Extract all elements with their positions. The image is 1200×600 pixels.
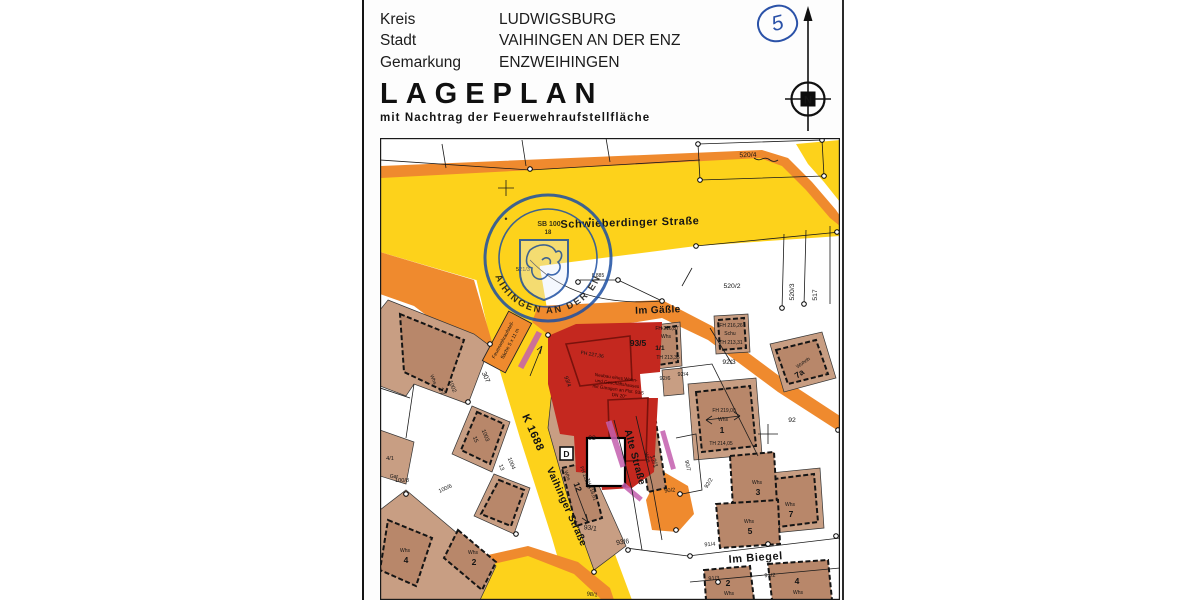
survey-point (822, 174, 827, 179)
house-number: 3 (756, 487, 761, 497)
building-use-label: Whs (661, 334, 672, 340)
survey-point (466, 400, 471, 405)
parcel-label: 1/1 (655, 345, 665, 352)
survey-point (546, 333, 551, 338)
north-arrow-head (804, 6, 813, 21)
building-use-label: Whs (468, 550, 479, 556)
house-number: 7 (789, 509, 794, 519)
street-label-im-biegel: Im Biegel (728, 550, 783, 566)
meta-label: Kreis (380, 9, 499, 30)
survey-point (694, 244, 699, 249)
meta-value: ENZWEIHINGEN (499, 52, 620, 73)
house-number: 4 (795, 576, 800, 586)
survey-point (592, 570, 597, 575)
north-letter: N (804, 95, 812, 107)
street-label-im-gaessle: Im Gäßle (635, 304, 681, 317)
parcel-label: 91/4 (704, 542, 715, 549)
survey-point (698, 178, 703, 183)
parcel-label: 13 (497, 464, 505, 472)
parcel-label: 520/4 (739, 152, 756, 160)
parcel-label: 92/4 (678, 372, 689, 378)
parcel-label: 4/1 (386, 456, 394, 462)
stamp-shield (520, 240, 568, 300)
building-use-label: Whs (400, 548, 411, 554)
parcel-label: 92/6 (660, 376, 671, 382)
page-subtitle: mit Nachtrag der Feuerwehraufstellfläche (380, 112, 830, 124)
scanned-lageplan: Kreis LUDWIGSBURG Stadt VAIHINGEN AN DER… (0, 0, 1200, 600)
document-page: Kreis LUDWIGSBURG Stadt VAIHINGEN AN DER… (362, 0, 844, 600)
parcel-label: 1004 (506, 457, 516, 471)
survey-point (696, 142, 701, 147)
survey-point (834, 534, 839, 539)
building-use-label: Whs (793, 590, 804, 596)
survey-point (688, 554, 693, 559)
parcel-label: 307 (480, 371, 491, 384)
survey-point (766, 542, 771, 547)
parcel-label: 90/7 (683, 460, 691, 472)
subject-parcel-number: 93/5 (630, 338, 647, 348)
boundary-line (682, 268, 692, 286)
parcel-label: 93 (588, 435, 596, 442)
survey-point (514, 532, 519, 537)
parcel-label: 91/3 (708, 576, 719, 583)
parcel-label: 100/6 (438, 483, 453, 494)
meta-value: LUDWIGSBURG (499, 9, 616, 30)
survey-point (404, 492, 409, 497)
meta-row: Gemarkung ENZWEIHINGEN (380, 52, 830, 73)
building-th-label: TH 213,31 (719, 340, 743, 346)
stamp-dot: • (504, 214, 507, 224)
stamp-line2: 18 (545, 230, 552, 236)
house-number: 1 (720, 425, 725, 435)
survey-point (528, 167, 533, 172)
survey-point (780, 306, 785, 311)
parcel-label: Gar (390, 474, 399, 480)
survey-point (678, 492, 683, 497)
building-fh-label: FH 216,26 (719, 323, 743, 329)
survey-point (835, 230, 840, 235)
building-use-label: Whs (785, 502, 796, 508)
survey-point (626, 548, 631, 553)
building-th-label: TH 213,35 (656, 355, 680, 361)
transformer-letter: D (563, 449, 569, 459)
parcel-label: 91/2 (764, 573, 775, 580)
building-use-label: Whs (718, 417, 729, 423)
parcel-label: 517 (812, 289, 819, 301)
stamp-dot: • (588, 214, 591, 224)
stamp-line1: SB 100 (537, 221, 560, 228)
building-fh-label: FH 219,00 (712, 408, 736, 414)
parcel-label: 92 (788, 417, 796, 424)
building-use-label: Whs (744, 519, 755, 525)
parcel-label: 90/2 (664, 487, 675, 494)
building-fh-label: FH 216,87 (655, 326, 679, 332)
parcel-label: 92/2 (704, 477, 715, 489)
parcel-label: 520/3 (789, 283, 796, 300)
survey-point (660, 299, 665, 304)
building-th-label: TH 214,05 (709, 441, 733, 447)
north-arrow-icon: N (778, 4, 838, 136)
survey-point (576, 280, 581, 285)
site-plan-map: Feuerwehraufstell- fläche 5 x 11 m (380, 138, 840, 600)
page-title: LAGEPLAN (380, 78, 830, 111)
survey-point (616, 278, 621, 283)
survey-point (802, 302, 807, 307)
house-number: 2 (726, 578, 731, 588)
parcel-label: 93/6 (616, 538, 630, 547)
building-use-label: Whs (752, 480, 763, 486)
building-use-label: Whs (724, 591, 735, 597)
house-number: 4 (404, 555, 409, 565)
parcel-label: 98/1 (586, 591, 597, 598)
meta-value: VAIHINGEN AN DER ENZ (499, 30, 680, 51)
meta-label: Gemarkung (380, 52, 499, 73)
house-number: 2 (472, 557, 477, 567)
meta-label: Stadt (380, 30, 499, 51)
parcel-label: 520/2 (723, 283, 740, 290)
survey-point (488, 342, 493, 347)
house-number: 5 (748, 526, 753, 536)
building-use-label: Schu (724, 331, 736, 337)
survey-point (674, 528, 679, 533)
parcel-label: 92/3 (722, 359, 735, 366)
